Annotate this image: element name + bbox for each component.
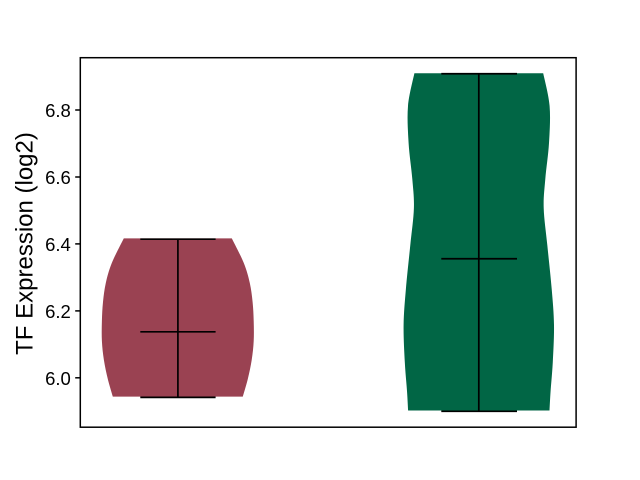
svg-text:6.0: 6.0 (45, 368, 71, 389)
svg-text:6.2: 6.2 (45, 301, 71, 322)
svg-text:6.8: 6.8 (45, 100, 71, 121)
svg-text:6.4: 6.4 (45, 234, 71, 255)
svg-text:6.6: 6.6 (45, 167, 71, 188)
svg-text:TF Expression (log2): TF Expression (log2) (11, 132, 38, 355)
